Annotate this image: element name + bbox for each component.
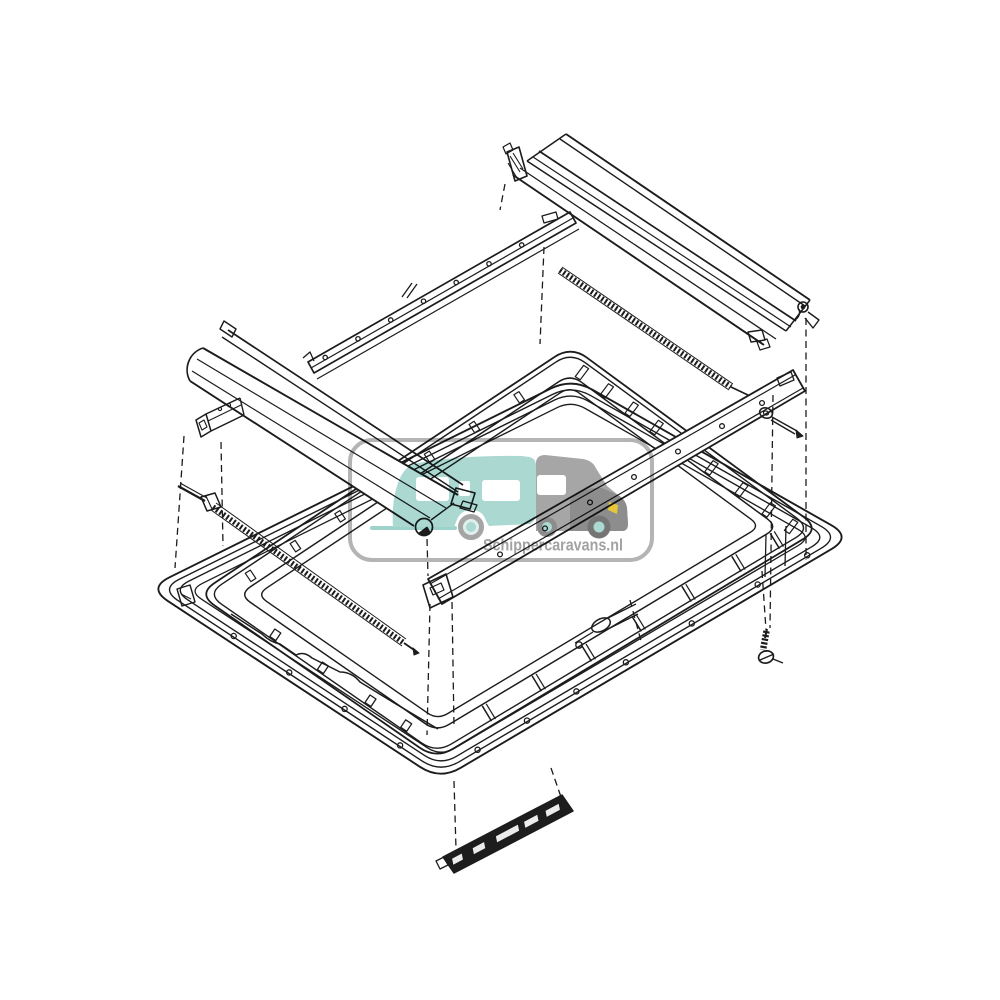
svg-text:Schippercaravans.nl: Schippercaravans.nl xyxy=(483,537,623,555)
